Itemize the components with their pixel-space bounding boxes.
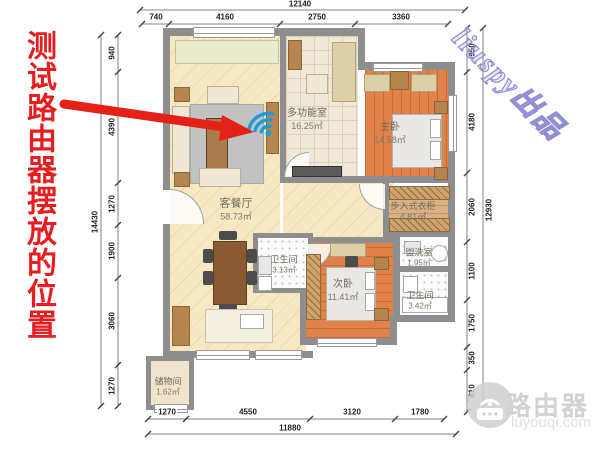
floorplan-image: 客餐厅 58.73㎡ 多功能室 16.25㎡ 主卧 14.58㎡ 步入式衣柜 4…: [0, 0, 600, 450]
watermark-site: luyouqi.com: [511, 414, 591, 431]
annotation-text: 测试路由器摆放的位置: [18, 30, 58, 348]
